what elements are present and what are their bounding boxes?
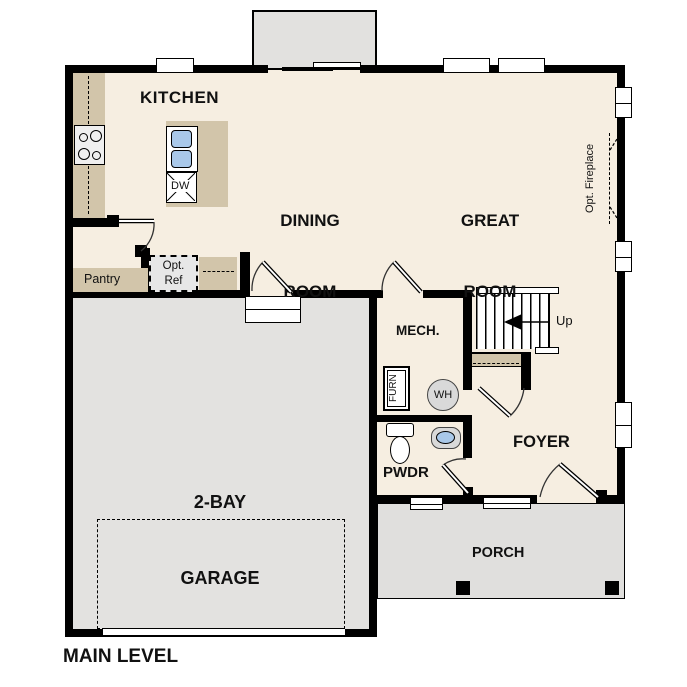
pwdr-sink-basin <box>436 431 455 444</box>
foyer-label: FOYER <box>513 431 570 454</box>
window-top-great-1 <box>443 58 490 73</box>
opt-ref-label-line1: Opt. <box>151 259 196 274</box>
sink-basin <box>171 150 192 168</box>
furnace-label: FURN <box>388 375 399 403</box>
window-right-great-2 <box>615 241 632 272</box>
floor-plan: DW Pantry Opt. Ref Up FURN WH Opt. Firep… <box>0 0 687 687</box>
window-divider <box>616 103 631 104</box>
great-room-label: GREAT ROOM <box>440 161 540 351</box>
opt-fireplace-dashed-line <box>609 133 610 224</box>
understair-dash-line <box>473 363 519 364</box>
porch-label: PORCH <box>472 543 524 563</box>
furnace: FURN <box>383 366 410 411</box>
wall-door-jamb <box>240 252 250 298</box>
water-heater: WH <box>427 379 459 411</box>
toilet-tank <box>386 423 414 437</box>
dishwasher: DW <box>166 172 197 203</box>
wall-left <box>65 65 73 637</box>
burner <box>78 148 90 160</box>
garage-label-line1: 2-BAY <box>160 490 280 515</box>
pantry-label: Pantry <box>84 271 120 289</box>
wall-pwdr-right <box>463 422 472 458</box>
island-sink-unit <box>166 126 198 172</box>
kitchen-label: KITCHEN <box>140 86 219 110</box>
opt-ref-label-line2: Ref <box>151 274 196 289</box>
window-right-great-1 <box>615 87 632 118</box>
stairs-up-label: Up <box>556 312 573 330</box>
burner <box>79 133 88 142</box>
garage-label: 2-BAY GARAGE <box>160 440 280 642</box>
window-top-great-2 <box>498 58 545 73</box>
opt-fireplace-label: Opt. Fireplace <box>584 130 600 226</box>
counter-by-ref <box>199 257 237 290</box>
window-divider <box>411 504 442 505</box>
cooktop <box>74 125 105 165</box>
front-door-hinge <box>596 490 607 503</box>
opt-ref-box: Opt. Ref <box>149 255 198 292</box>
great-room-label-line2: ROOM <box>440 280 540 304</box>
wall-closet-right <box>521 352 531 390</box>
dining-room-label: DINING ROOM <box>260 161 360 351</box>
porch-post <box>605 581 619 595</box>
dining-room-label-line2: ROOM <box>260 280 360 304</box>
understair-shelf <box>472 352 521 367</box>
window-top-kitchen <box>156 58 194 73</box>
mech-label: MECH. <box>396 322 440 341</box>
great-room-label-line1: GREAT <box>440 209 540 233</box>
wall-garage-right <box>369 290 377 637</box>
toilet-bowl <box>390 436 410 464</box>
window-divider <box>616 425 631 426</box>
pwdr-label: PWDR <box>383 462 429 483</box>
furnace-label-box: FURN <box>387 370 406 407</box>
dining-room-label-line1: DINING <box>260 209 360 233</box>
window-bottom-foyer <box>483 497 531 509</box>
water-heater-label: WH <box>434 389 452 401</box>
pwdr-door-hinge <box>463 487 473 498</box>
window-divider <box>616 257 631 258</box>
garage-label-line2: GARAGE <box>160 566 280 591</box>
window-divider <box>484 503 530 504</box>
dishwasher-label: DW <box>170 180 190 192</box>
front-door-opening <box>537 495 599 503</box>
wall-top-right <box>360 65 625 73</box>
plan-title: MAIN LEVEL <box>63 644 178 671</box>
pwdr-sink <box>431 427 461 449</box>
porch-post <box>456 581 470 595</box>
window-bottom-hall <box>410 497 443 510</box>
wall-mech-pwdr <box>377 415 472 422</box>
burner <box>92 151 101 160</box>
rear-bumpout <box>252 10 377 70</box>
counter-dash-line <box>203 271 234 272</box>
window-right-foyer <box>615 402 632 448</box>
burner <box>90 130 102 142</box>
sink-basin <box>171 130 192 148</box>
sliding-door-panel-rear <box>313 62 361 68</box>
wall-pantry-top <box>65 218 113 227</box>
